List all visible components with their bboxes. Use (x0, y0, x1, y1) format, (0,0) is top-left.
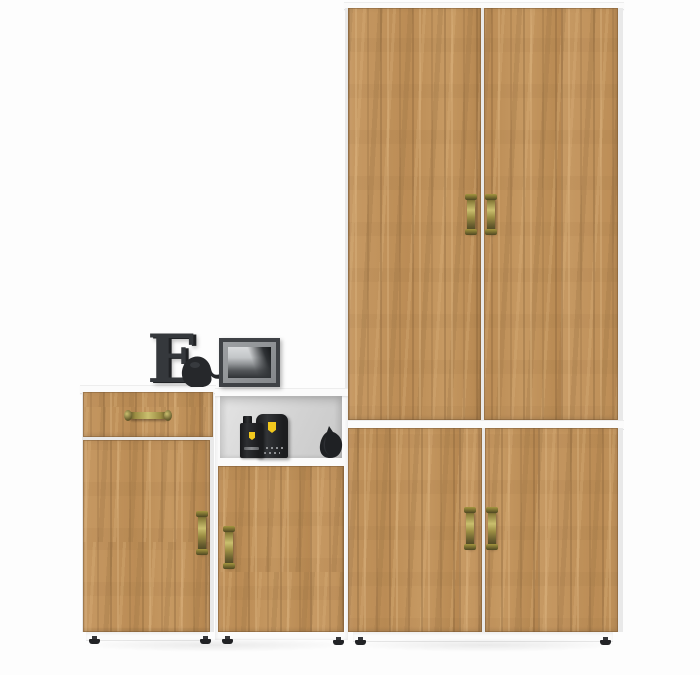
product-photo: E (0, 0, 700, 675)
shield-logo-icon (268, 422, 276, 433)
bottle-label (244, 447, 259, 450)
cat-figurine (318, 425, 345, 459)
photo-frame (219, 338, 280, 387)
low-cabinet-handle-right (488, 509, 496, 548)
shelf-cabinet-door (218, 466, 344, 632)
photo-mat (223, 342, 276, 383)
chest-door (83, 440, 210, 632)
shelf-cabinet-door-handle (225, 528, 233, 567)
chest-door-handle (198, 513, 206, 553)
wardrobe-door-right (484, 8, 618, 420)
floor-shadow (80, 638, 350, 652)
drawer-handle (128, 412, 168, 419)
low-cabinet-door-right (485, 428, 618, 632)
low-cabinet-handle-left (466, 509, 474, 548)
perfume-bottle (240, 423, 263, 458)
floor-shadow (350, 638, 620, 652)
wardrobe-door-left (348, 8, 481, 420)
low-cabinet-door-left (348, 428, 482, 632)
box-label-text (261, 447, 283, 449)
landscape-photo (228, 347, 271, 378)
wardrobe-handle-right (487, 196, 495, 233)
box-label-text (264, 452, 280, 454)
wardrobe-handle-left (467, 196, 475, 233)
shield-logo-icon (249, 432, 255, 440)
